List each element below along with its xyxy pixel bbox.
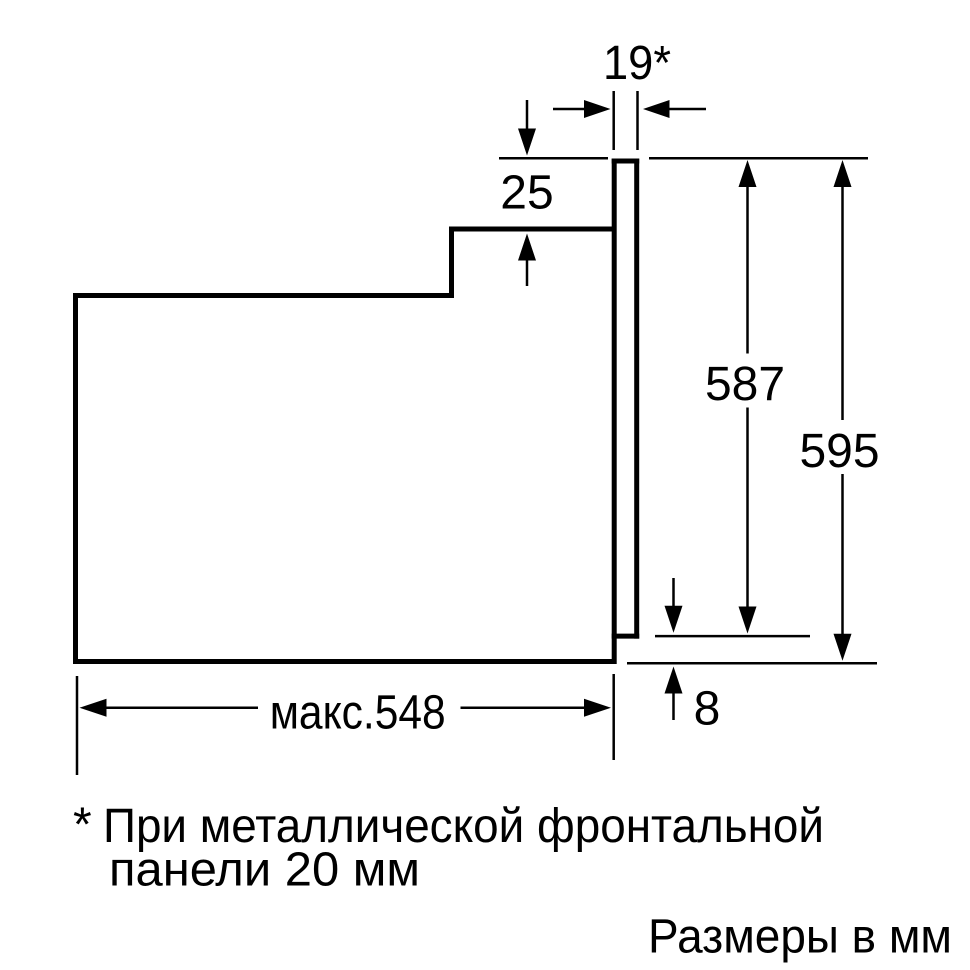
svg-text:макс.548: макс.548 [270, 686, 446, 739]
svg-text:8: 8 [694, 683, 721, 736]
svg-text:25: 25 [500, 167, 553, 220]
svg-text:*: * [73, 799, 92, 852]
svg-text:595: 595 [799, 425, 879, 478]
svg-text:587: 587 [705, 358, 785, 411]
svg-text:панели 20 мм: панели 20 мм [109, 844, 420, 897]
svg-text:19*: 19* [603, 37, 671, 90]
svg-text:Размеры в мм: Размеры в мм [648, 911, 952, 964]
